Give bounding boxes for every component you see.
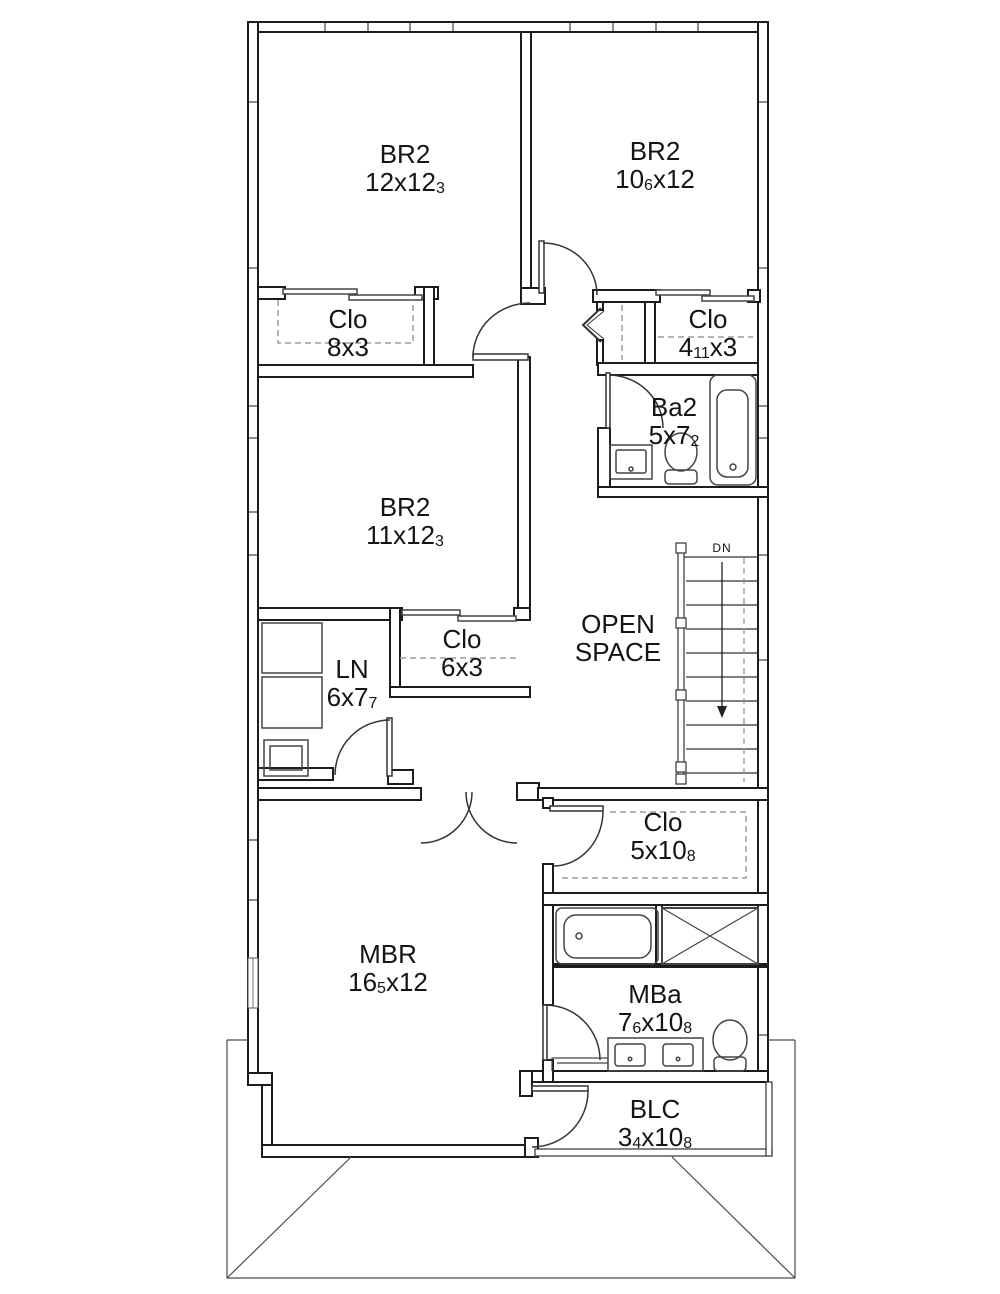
dim-sub: 2 bbox=[691, 433, 700, 450]
room-name: Clo bbox=[268, 305, 428, 333]
mba-vanity bbox=[552, 1038, 703, 1071]
room-name: BR2 bbox=[325, 140, 485, 168]
room-name: BR2 bbox=[325, 493, 485, 521]
dim-part: 7 bbox=[618, 1007, 632, 1037]
room-label-br2-mid: BR2 11x123 bbox=[325, 493, 485, 554]
room-name: Clo bbox=[628, 305, 788, 333]
stairs bbox=[676, 543, 758, 784]
room-label-br2-right: BR2 106x12 bbox=[575, 137, 735, 198]
stair-treads bbox=[684, 557, 758, 773]
room-dim: 411x3 bbox=[628, 333, 788, 366]
room-dim: 165x12 bbox=[308, 968, 468, 1001]
room-dim: 34x108 bbox=[575, 1123, 735, 1156]
room-name: Clo bbox=[583, 808, 743, 836]
dim-part: 11x12 bbox=[366, 520, 435, 550]
floor-plan-page: BR2 12x123 BR2 106x12 Clo 8x3 Clo 411x3 … bbox=[0, 0, 1000, 1294]
room-name: MBa bbox=[575, 980, 735, 1008]
room-dim: 11x123 bbox=[325, 521, 485, 554]
room-dim: 8x3 bbox=[268, 333, 428, 366]
dim-sub: 6 bbox=[644, 177, 653, 194]
mba-bathtub bbox=[556, 908, 658, 964]
dim-sub: 8 bbox=[683, 1135, 692, 1152]
room-name: LN bbox=[272, 655, 432, 683]
slider-clo-left bbox=[283, 289, 357, 294]
room-label-laundry: LN 6x77 bbox=[272, 655, 432, 716]
room-label-br2-left: BR2 12x123 bbox=[325, 140, 485, 201]
dim-part: x10 bbox=[641, 1007, 683, 1037]
dim-part: 4 bbox=[679, 332, 693, 362]
room-dim: 5x108 bbox=[583, 836, 743, 869]
room-label-open-space: OPEN SPACE bbox=[553, 610, 683, 666]
dim-part: x3 bbox=[710, 332, 737, 362]
room-label-ba2: Ba2 5x72 bbox=[594, 393, 754, 454]
room-label-blc: BLC 34x108 bbox=[575, 1095, 735, 1156]
door-laundry bbox=[335, 718, 392, 776]
dim-part: 3 bbox=[618, 1122, 632, 1152]
door-br2-right bbox=[539, 241, 597, 295]
dim-part: 5x7 bbox=[649, 420, 691, 450]
room-dim: 76x108 bbox=[575, 1008, 735, 1041]
dim-part: x12 bbox=[653, 164, 695, 194]
door-bifold-linen bbox=[583, 308, 604, 342]
dim-sub: 3 bbox=[436, 180, 445, 197]
roof-hip-lines bbox=[227, 1157, 795, 1278]
room-name: MBR bbox=[308, 940, 468, 968]
dim-sub: 5 bbox=[377, 980, 386, 997]
room-name: BR2 bbox=[575, 137, 735, 165]
slider-clo-left-2 bbox=[349, 295, 422, 300]
stair-down-arrow bbox=[717, 562, 727, 718]
dim-part: 16 bbox=[348, 967, 377, 997]
room-label-clo-master: Clo 5x108 bbox=[583, 808, 743, 869]
slider-clo-right-2 bbox=[702, 296, 754, 301]
mba-shower bbox=[662, 908, 758, 964]
dim-part: 5x10 bbox=[630, 835, 686, 865]
room-label-clo-left: Clo 8x3 bbox=[268, 305, 428, 366]
room-name: Ba2 bbox=[594, 393, 754, 421]
door-mbr-double bbox=[421, 792, 517, 843]
room-label-mba: MBa 76x108 bbox=[575, 980, 735, 1041]
dim-part: 6x7 bbox=[327, 682, 369, 712]
room-dim: 6x77 bbox=[272, 683, 432, 716]
dim-sub: 6 bbox=[632, 1020, 641, 1037]
dim-part: 8x3 bbox=[327, 332, 369, 362]
slider-clo-right bbox=[656, 290, 710, 295]
dim-part: 12x12 bbox=[365, 167, 436, 197]
dim-sub: 7 bbox=[369, 695, 378, 712]
stairs-down-label: DN bbox=[702, 541, 742, 555]
room-name: OPEN SPACE bbox=[553, 610, 683, 666]
dim-part: 10 bbox=[615, 164, 644, 194]
slider-clo-hall-2 bbox=[458, 616, 516, 621]
dim-sub: 8 bbox=[683, 1020, 692, 1037]
dim-part: x12 bbox=[386, 967, 428, 997]
slider-clo-hall bbox=[402, 610, 460, 615]
utility-sink bbox=[264, 740, 308, 776]
dim-sub: 3 bbox=[435, 533, 444, 550]
door-br2-left bbox=[473, 303, 530, 360]
dim-part: x10 bbox=[641, 1122, 683, 1152]
room-name: Clo bbox=[382, 625, 542, 653]
room-dim: 106x12 bbox=[575, 165, 735, 198]
dim-sub: 11 bbox=[693, 345, 710, 362]
room-label-mbr: MBR 165x12 bbox=[308, 940, 468, 1001]
room-dim: 5x72 bbox=[594, 421, 754, 454]
dim-part: 6x3 bbox=[441, 652, 483, 682]
room-name: BLC bbox=[575, 1095, 735, 1123]
room-dim: 12x123 bbox=[325, 168, 485, 201]
room-label-clo-right: Clo 411x3 bbox=[628, 305, 788, 366]
dim-sub: 4 bbox=[632, 1135, 641, 1152]
dim-sub: 8 bbox=[687, 848, 696, 865]
window-left-wall bbox=[248, 958, 258, 1008]
